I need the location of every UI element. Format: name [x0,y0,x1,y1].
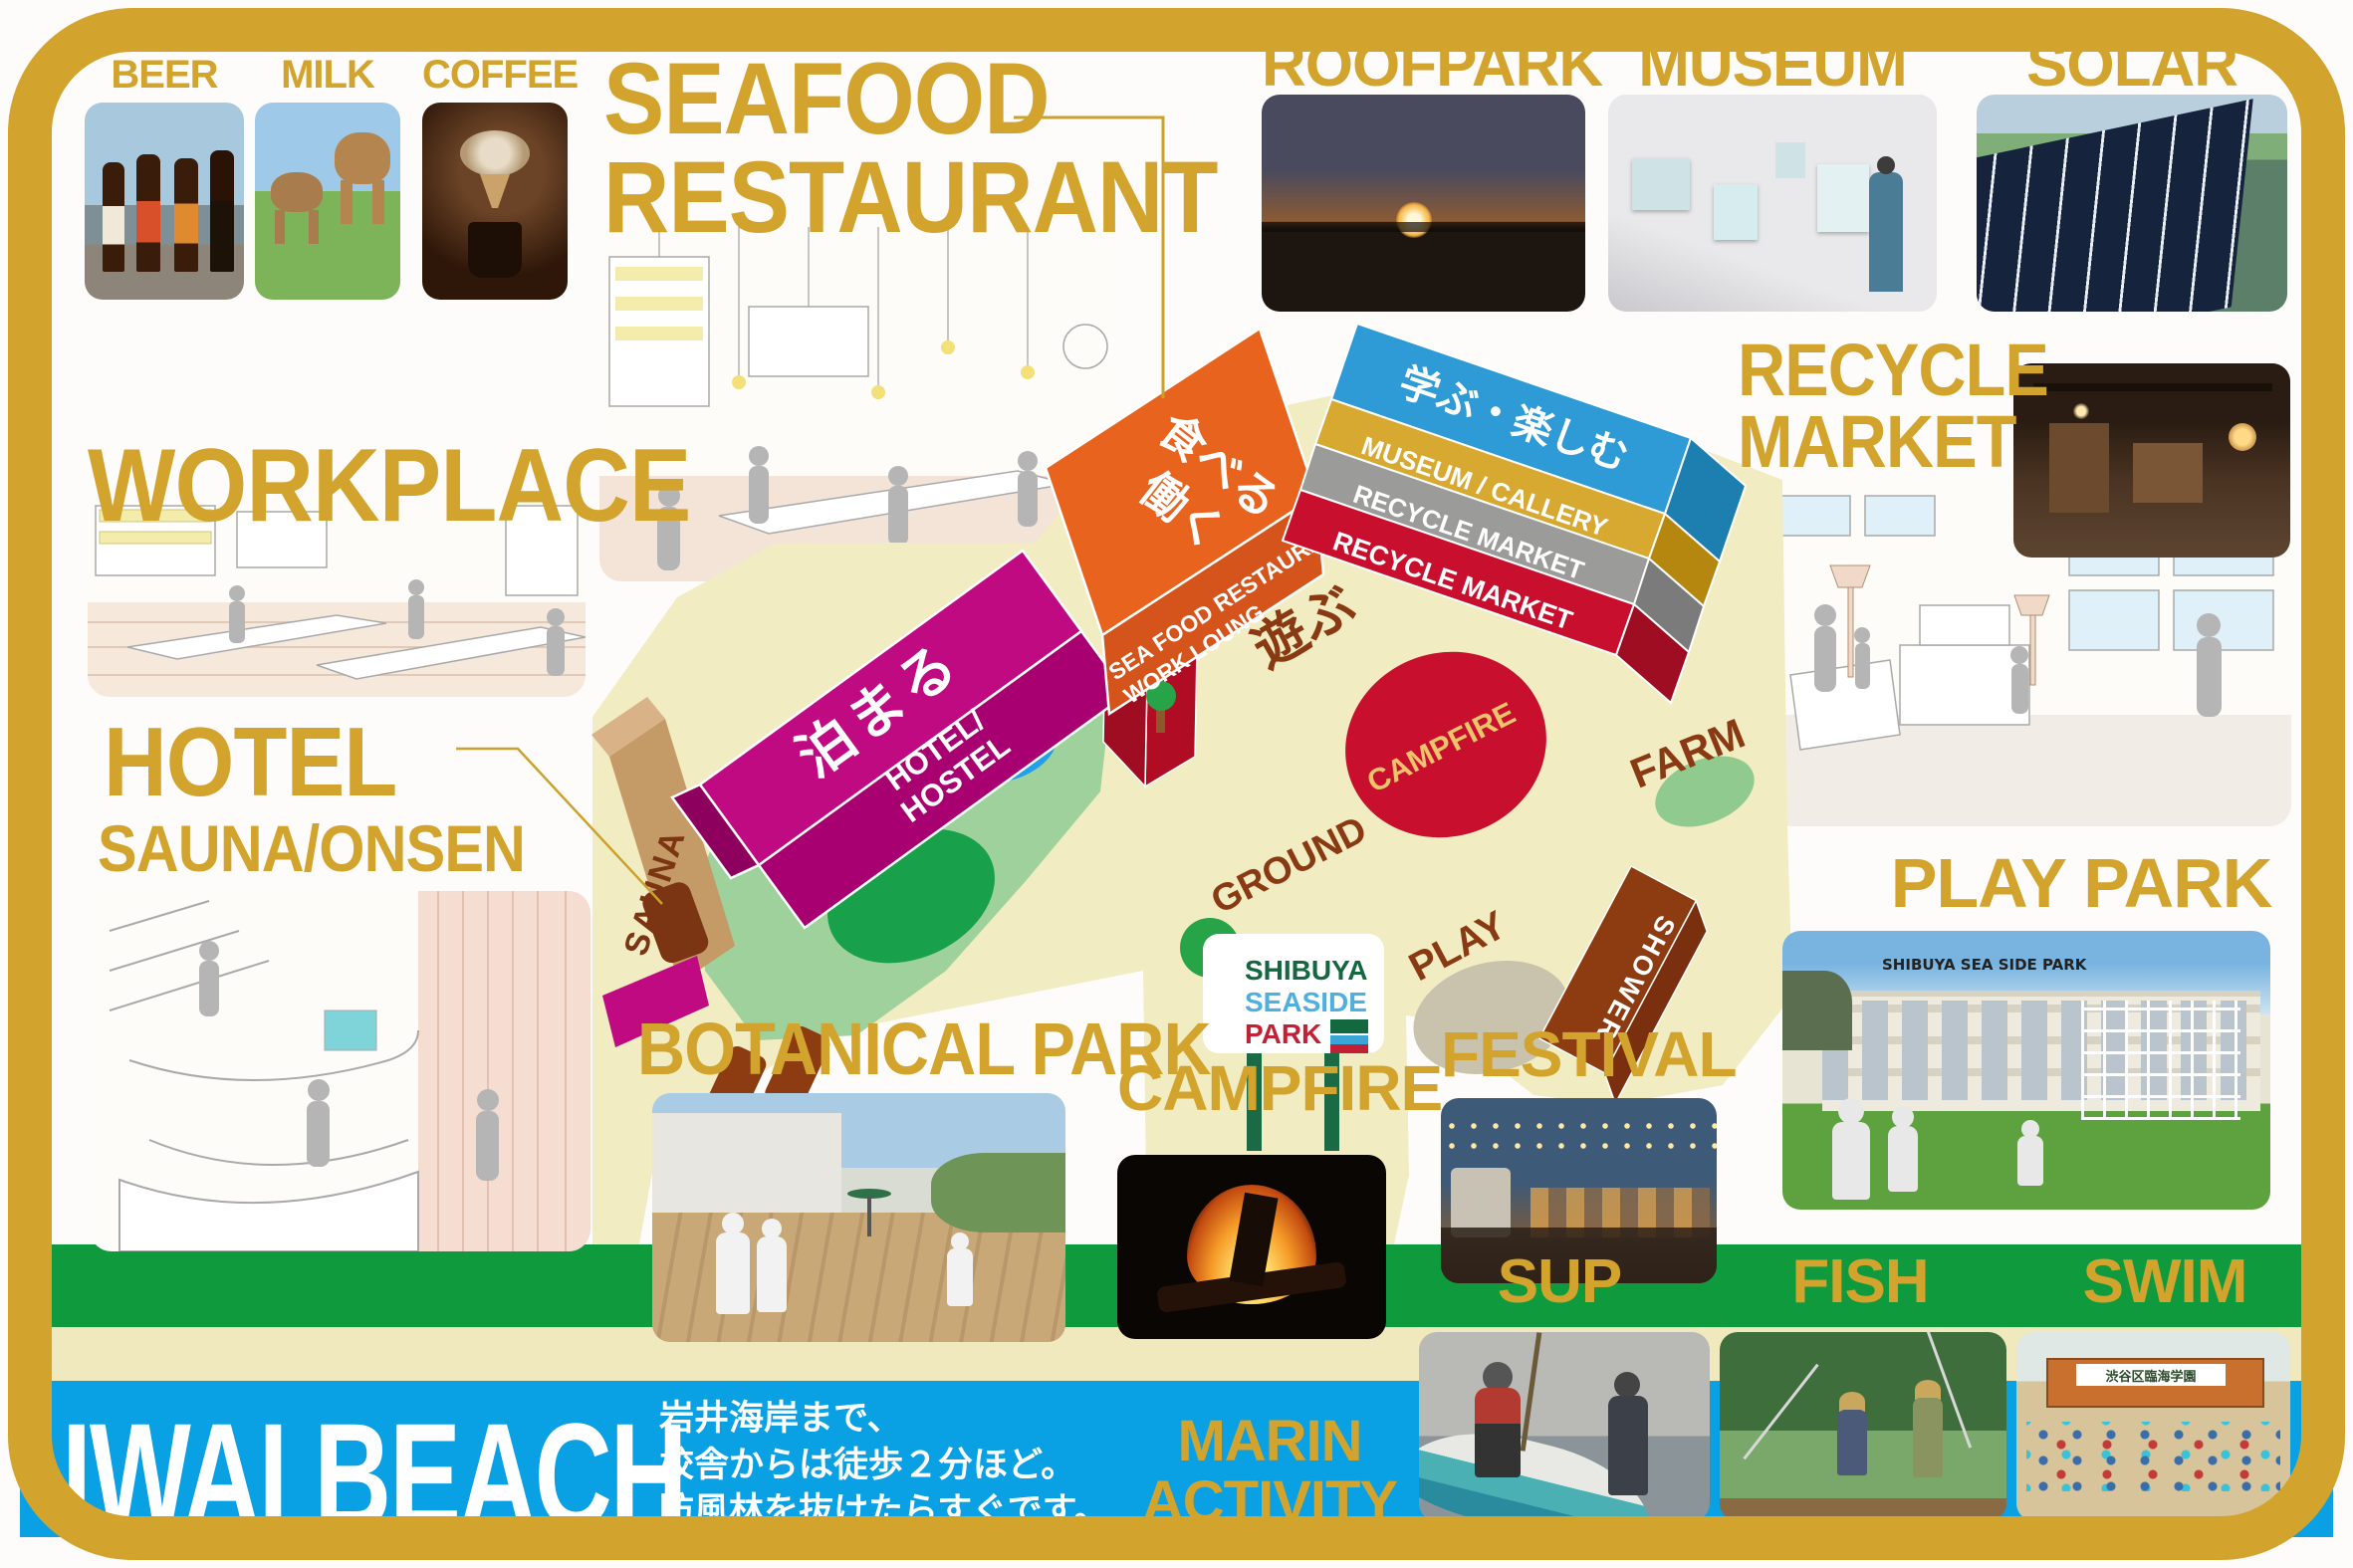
seaside-park-poster: PARK SAUNA [0,0,2353,1568]
sign-line3: PARK [1245,1018,1321,1049]
iwai-beach-description: 岩井海岸まで、 校舎からは徒歩２分ほど。 防風林を抜けたらすぐです。 [659,1396,1108,1535]
sign-line2: SEASIDE [1245,987,1367,1017]
sign-line1: SHIBUYA [1245,955,1367,986]
roofpark-label: ROOFPARK [1262,36,1585,96]
swim-banner-text: 渋谷区臨海学園 [2105,1366,2196,1385]
sign-flag-icon [1330,1019,1368,1053]
beer-label: BEER [85,56,244,95]
botanical-park-photo [652,1093,1065,1342]
campfire-heading: CAMPFIRE [1117,1057,1386,1119]
sup-photo [1419,1332,1710,1521]
fish-label: FISH [1761,1252,1960,1312]
fish-photo [1720,1332,2006,1521]
marin-activity-label: MARINACTIVITY [1135,1412,1404,1533]
festival-heading: FESTIVAL [1441,1023,1717,1085]
beer-photo [85,103,244,300]
play-park-photo: SHIBUYA SEA SIDE PARK [1782,931,2270,1210]
iwai-beach-title: IWAI BEACH [62,1390,685,1562]
roofpark-photo [1262,95,1585,312]
coffee-photo [422,103,568,300]
workplace-heading: WORKPLACE [88,436,690,537]
play-park-heading: PLAY PARK [1872,850,2290,918]
recycle-market-photo [2013,363,2290,558]
seafood-restaurant-heading: SEAFOODRESTAURANT [603,50,1218,247]
hotel-heading: HOTEL [104,715,396,809]
milk-photo [255,103,400,300]
solar-label: SOLAR [1977,36,2287,96]
recycle-market-heading: RECYCLEMARKET [1738,335,2048,478]
playpark-building-sign: SHIBUYA SEA SIDE PARK [1882,956,2086,974]
sup-label: SUP [1460,1252,1659,1312]
solar-photo [1977,95,2287,312]
swim-photo: 渋谷区臨海学園 [2016,1332,2290,1521]
coffee-label: COFFEE [422,56,568,95]
sauna-onsen-heading: SAUNA/ONSEN [98,816,525,880]
swim-label: SWIM [2065,1252,2264,1312]
milk-label: MILK [255,56,400,95]
museum-photo [1608,95,1937,312]
campfire-photo [1117,1155,1386,1339]
museum-label: MUSEUM [1608,36,1937,96]
